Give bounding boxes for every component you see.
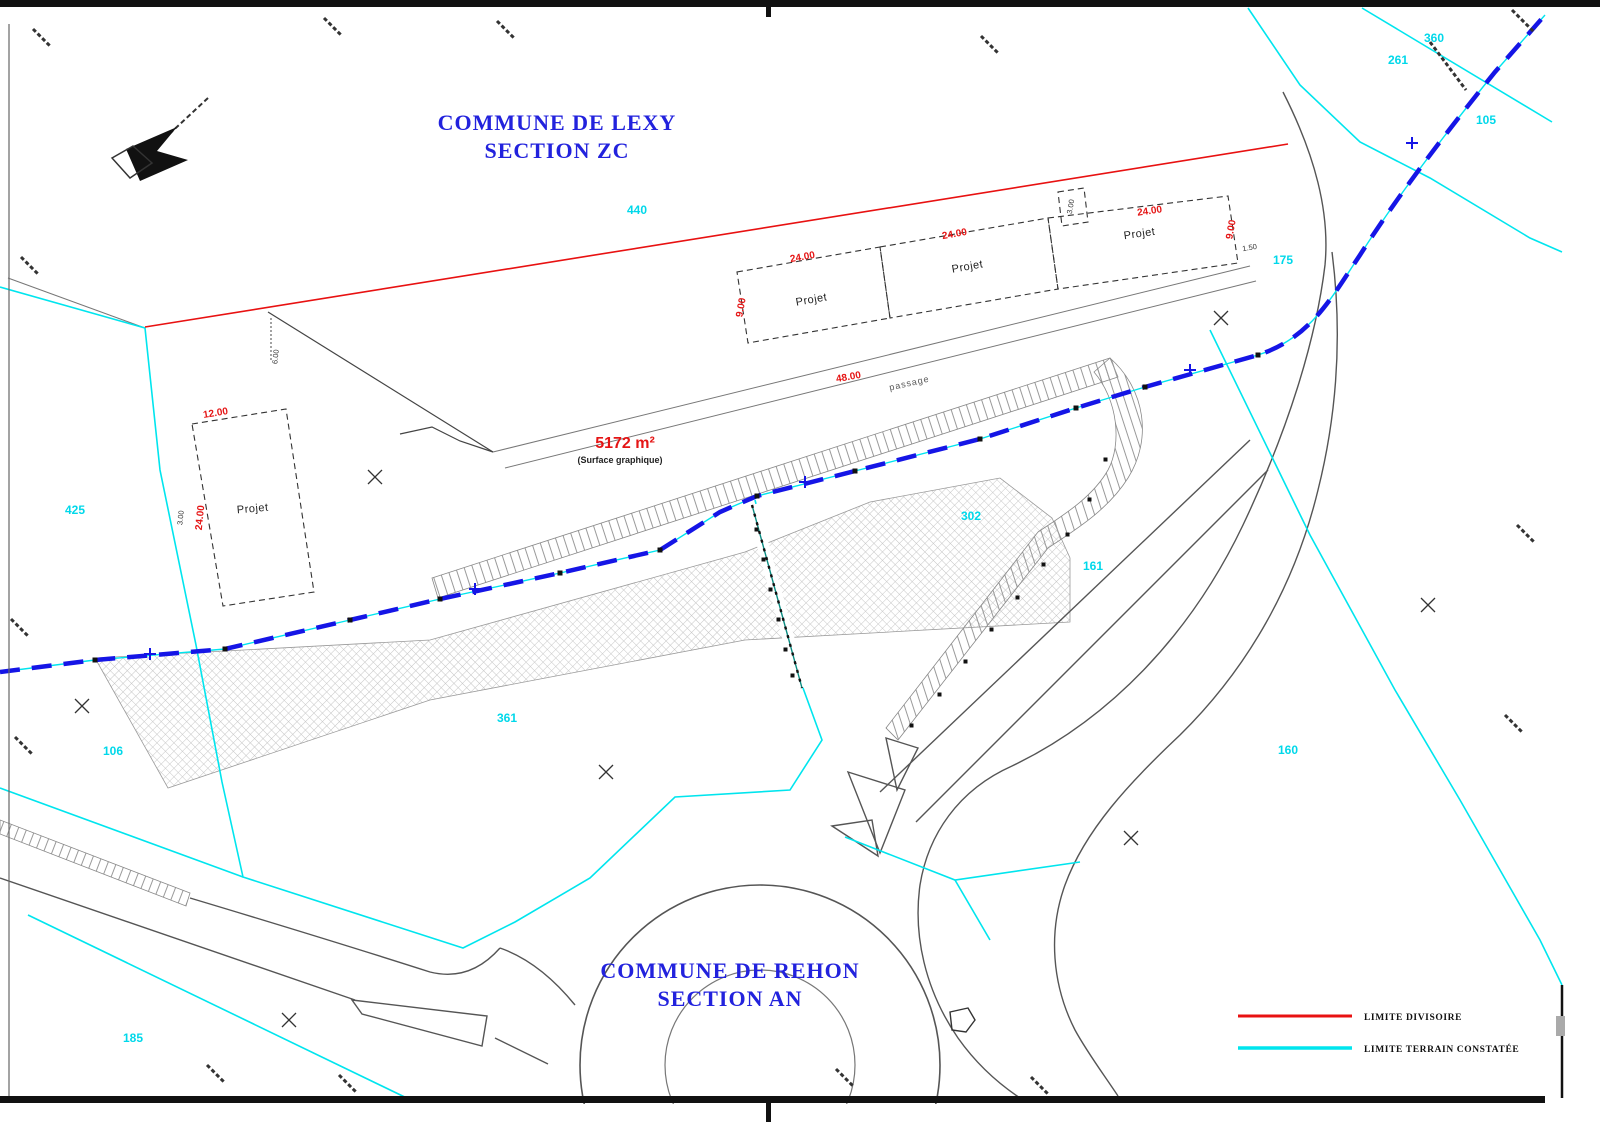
legend: LIMITE DIVISOIRE LIMITE TERRAIN CONSTATÉ… bbox=[1238, 1013, 1519, 1055]
title-commune-lexy: COMMUNE DE LEXY bbox=[438, 110, 677, 135]
survey-cross bbox=[1421, 598, 1435, 612]
black-dimensions: 3.00 6.00 1.50 3.00 bbox=[175, 199, 1257, 526]
project-labels: Projet Projet Projet Projet bbox=[236, 226, 1156, 516]
parcel-number: 185 bbox=[123, 1031, 143, 1045]
parcel-number: 175 bbox=[1273, 253, 1293, 267]
cadastral-plan: COMMUNE DE LEXY SECTION ZC COMMUNE DE RE… bbox=[0, 0, 1600, 1125]
dimension-label: 9.00 bbox=[734, 297, 748, 319]
dimension-label: 9.00 bbox=[1224, 219, 1238, 241]
dimension-label: 48.00 bbox=[835, 370, 862, 385]
scrollbar-handle[interactable] bbox=[1556, 1016, 1565, 1036]
title-section-an: SECTION AN bbox=[657, 986, 802, 1011]
project-label: Projet bbox=[951, 258, 984, 275]
survey-cross bbox=[75, 699, 89, 713]
north-arrow bbox=[112, 98, 208, 181]
dimension-label: 3.00 bbox=[1065, 199, 1076, 215]
legend-label-terrain: LIMITE TERRAIN CONSTATÉE bbox=[1364, 1043, 1519, 1055]
dimension-label: 6.00 bbox=[270, 349, 280, 364]
project-label: Projet bbox=[236, 502, 269, 517]
area-qualifier: (Surface graphique) bbox=[577, 455, 662, 465]
survey-cross bbox=[1124, 831, 1138, 845]
area-value: 5172 m² bbox=[595, 435, 655, 452]
survey-cross bbox=[368, 470, 382, 484]
limite-divisoire-line bbox=[145, 144, 1288, 327]
dimension-label: 24.00 bbox=[1136, 204, 1163, 218]
survey-cross bbox=[599, 765, 613, 779]
title-commune-rehon: COMMUNE DE REHON bbox=[600, 958, 859, 983]
parcel-number: 360 bbox=[1424, 31, 1444, 45]
survey-cross bbox=[282, 1013, 296, 1027]
parcel-number: 440 bbox=[627, 203, 647, 217]
dimension-label: 1.50 bbox=[1242, 242, 1258, 253]
survey-cross bbox=[1214, 311, 1228, 325]
hatched-path-strip bbox=[95, 478, 1070, 788]
parcel-number: 160 bbox=[1278, 743, 1298, 757]
dimension-label: 3.00 bbox=[175, 510, 185, 525]
dimension-label: 24.00 bbox=[941, 227, 968, 242]
parcel-number: 361 bbox=[497, 711, 517, 725]
parcel-number: 425 bbox=[65, 503, 85, 517]
legend-label-divisoire: LIMITE DIVISOIRE bbox=[1364, 1013, 1462, 1023]
dimension-label: 24.00 bbox=[789, 250, 816, 265]
parcel-number: 302 bbox=[961, 509, 981, 523]
title-section-zc: SECTION ZC bbox=[484, 138, 629, 163]
parcel-number: 105 bbox=[1476, 113, 1496, 127]
dimension-label: 24.00 bbox=[194, 504, 208, 530]
project-label: Projet bbox=[795, 291, 828, 308]
passage-label: passage bbox=[888, 374, 930, 393]
parcel-number: 106 bbox=[103, 744, 123, 758]
parcel-number: 261 bbox=[1388, 53, 1408, 67]
project-label: Projet bbox=[1123, 226, 1156, 242]
parcel-number: 161 bbox=[1083, 559, 1103, 573]
